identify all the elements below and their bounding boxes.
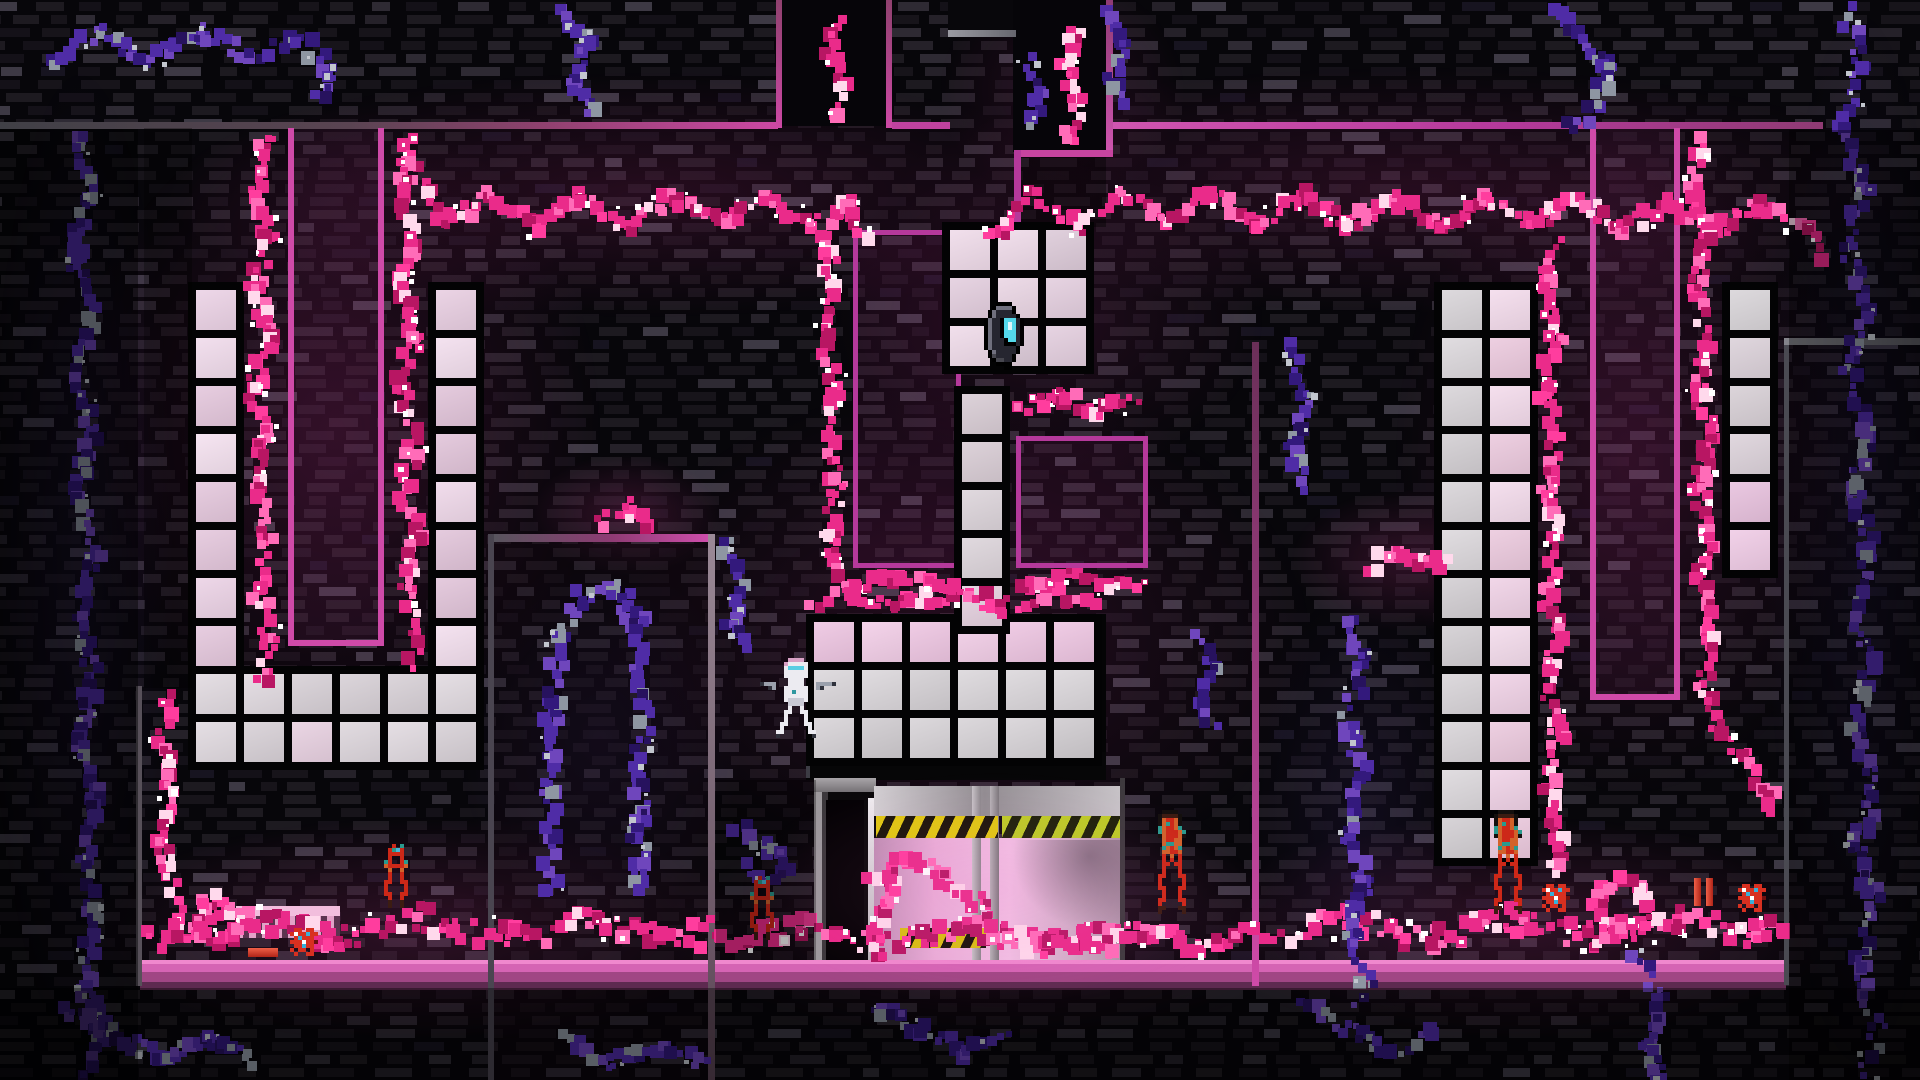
brick [20,483,38,492]
brick [1307,418,1332,427]
brick [1211,795,1227,804]
brick [48,795,73,804]
brick [1239,1068,1268,1077]
brick [1671,1055,1700,1064]
brick [1216,15,1247,24]
brick [205,1055,241,1064]
brick [418,249,452,258]
brick [814,1068,851,1077]
brick [1222,314,1256,323]
brick [1412,171,1428,180]
brick [1196,834,1225,843]
brick [1342,2,1364,11]
white-tile [1442,674,1482,714]
brick [600,288,638,297]
brick [504,93,533,102]
brick [545,145,578,154]
brick [1076,379,1115,388]
brick [1488,171,1506,180]
brick [1869,28,1901,37]
brick [465,951,489,960]
white-tile [292,722,332,762]
brick [1759,1042,1776,1051]
brick [232,1029,257,1038]
brick [91,496,123,505]
brick [745,483,763,492]
brick [42,1055,76,1064]
brick [1136,275,1161,284]
brick [744,717,761,726]
brick [1323,353,1357,362]
brick [743,41,774,50]
brick [1519,171,1550,180]
brick [56,535,81,544]
brick [0,470,5,479]
white-tile [436,530,476,570]
brick [192,106,219,115]
brick [1713,184,1742,193]
platform-edge [1014,150,1113,157]
brick [1150,1042,1173,1051]
brick [1068,1003,1096,1012]
brick [1249,236,1278,245]
brick [390,1016,417,1025]
brick [48,769,82,778]
brick [1274,782,1312,791]
brick [606,171,625,180]
brick [727,106,756,115]
brick [643,327,668,336]
white-tile [950,278,990,318]
brick [1272,626,1302,635]
brick [460,808,485,817]
brick [1795,184,1827,193]
brick [37,379,61,388]
brick [289,106,322,115]
brick [176,171,193,180]
brick [585,132,606,141]
brick [1886,106,1917,115]
brick [610,444,642,453]
platform-edge [0,122,778,129]
brick [1573,15,1601,24]
brick [1291,756,1322,765]
brick [1068,1055,1094,1064]
brick [120,561,144,570]
brick [524,80,561,89]
brick [896,93,924,102]
brick [437,1016,468,1025]
brick [1340,93,1378,102]
brick [1872,925,1907,934]
brick [935,184,972,193]
brick [1902,119,1920,128]
brick [235,990,263,999]
brick [1433,249,1471,258]
brick [1381,483,1403,492]
brick [916,171,941,180]
white-tile [862,670,902,710]
brick [1822,691,1848,700]
brick [1714,756,1731,765]
brick [1725,1016,1747,1025]
brick [1784,15,1814,24]
brick [551,418,587,427]
brick [1192,470,1231,479]
brick [0,28,30,37]
brick [1486,15,1511,24]
brick [17,561,45,570]
platform-edge [488,534,714,542]
brick [406,54,427,63]
brick [0,730,23,739]
brick [773,366,797,375]
brick [791,392,810,401]
brick [1563,795,1587,804]
brick [1654,54,1676,63]
brick [149,613,182,622]
brick [0,301,2,310]
brick [1102,236,1123,245]
brick [109,457,128,466]
brick [347,899,365,908]
brick [1572,509,1591,518]
brick [1216,275,1251,284]
brick [1260,717,1280,726]
brick [1745,678,1781,687]
brick [120,314,141,323]
white-tile [1442,482,1482,522]
brick [668,457,686,466]
brick [541,366,569,375]
brick [0,41,5,50]
brick [431,1029,467,1038]
brick [1395,600,1429,609]
brick [529,275,558,284]
brick [1270,314,1307,323]
brick [1270,132,1290,141]
brick [717,2,736,11]
brick [139,1068,157,1077]
brick [1804,1003,1828,1012]
brick [1786,522,1809,531]
brick [1321,782,1342,791]
brick [754,1042,790,1051]
white-tile [1006,670,1046,710]
brick [1874,41,1900,50]
brick [1562,769,1585,778]
brick [508,405,545,414]
brick [680,171,716,180]
block-fill [494,542,708,1080]
brick [228,769,262,778]
game-viewport[interactable] [0,0,1920,1080]
brick [1528,1042,1555,1051]
brick [1893,613,1917,622]
brick [340,1055,367,1064]
brick [330,2,353,11]
brick [0,665,7,674]
brick [704,340,724,349]
brick [743,340,779,349]
brick [1758,236,1785,245]
brick [1809,873,1846,882]
brick [1164,28,1186,37]
brick [1905,691,1920,700]
brick [429,1055,451,1064]
brick [0,899,12,908]
brick [1579,821,1604,830]
brick [0,691,2,700]
brick [1317,626,1335,635]
brick [1360,15,1387,24]
brick [1795,197,1829,206]
brick [1395,314,1415,323]
brick [561,405,594,414]
brick [711,1068,745,1077]
brick [1277,1016,1298,1025]
white-tile [1490,530,1530,570]
brick [1361,535,1388,544]
brick [766,1068,803,1077]
brick [1473,132,1505,141]
brick [613,275,630,284]
brick [161,587,180,596]
brick [0,392,21,401]
brick [741,67,778,76]
brick [1220,132,1257,141]
brick [780,314,797,323]
brick [1609,2,1649,11]
brick [1338,340,1376,349]
brick [83,54,118,63]
brick [137,210,158,219]
white-tile [1054,718,1094,758]
brick [649,431,689,440]
brick [700,314,739,323]
brick [793,496,830,505]
brick [1331,522,1369,531]
brick [0,223,2,232]
brick [792,990,819,999]
brick [1793,678,1822,687]
brick [59,93,94,102]
brick [1632,808,1660,817]
brick [1377,353,1409,362]
brick [29,535,46,544]
brick [1665,41,1700,50]
brick [222,860,261,869]
brick [667,340,693,349]
brick [371,782,409,791]
brick [1796,613,1821,622]
brick [518,444,549,453]
brick [205,93,237,102]
brick [1448,873,1470,882]
white-tile [962,538,1002,578]
brick [1169,236,1191,245]
brick [1172,574,1195,583]
brick [1163,600,1182,609]
brick [1475,106,1503,115]
brick [1498,951,1525,960]
brick [1494,54,1530,63]
brick [1208,171,1241,180]
brick [1345,249,1373,258]
brick [734,132,754,141]
brick [104,184,134,193]
brick [0,925,1,934]
brick [1142,756,1178,765]
platform-edge [708,534,715,1080]
brick [1486,249,1515,258]
brick [1642,860,1676,869]
brick [1494,1003,1531,1012]
brick [834,1042,867,1051]
brick [414,1042,443,1051]
brick [281,54,303,63]
brick [631,457,651,466]
brick [1217,574,1244,583]
brick [698,457,732,466]
brick [1811,379,1849,388]
brick [747,808,765,817]
brick [36,2,65,11]
brick [1873,717,1895,726]
brick [1602,847,1623,856]
brick [744,652,781,661]
brick [737,158,757,167]
brick [1709,28,1732,37]
brick [1410,28,1449,37]
brick [0,132,14,141]
brick [1349,587,1382,596]
brick [1166,171,1196,180]
brick [1166,106,1182,115]
brick [193,847,224,856]
brick [113,470,133,479]
brick [1101,1016,1139,1025]
red-bar [248,948,278,957]
brick [1462,2,1495,11]
brick [330,782,358,791]
brick [1804,496,1831,505]
brick [1561,587,1580,596]
brick [45,275,74,284]
brick [1796,132,1825,141]
brick [9,821,33,830]
brick [1891,847,1920,856]
brick [1244,288,1263,297]
brick [806,418,841,427]
brick [1460,145,1489,154]
brick [692,483,729,492]
brick [1890,210,1918,219]
brick [959,158,975,167]
brick [305,1055,330,1064]
brick [1726,171,1753,180]
brick [188,1016,214,1025]
brick [1804,353,1842,362]
brick [1186,366,1205,375]
brick [1425,158,1452,167]
brick [285,808,321,817]
brick [27,886,53,895]
brick [410,873,444,882]
brick [1518,1016,1540,1025]
brick [205,262,236,271]
floor-platform [1258,960,1786,990]
brick [1721,652,1753,661]
brick [683,496,719,505]
brick [1875,574,1915,583]
brick [1671,80,1700,89]
brick [1762,717,1783,726]
brick [1746,262,1784,271]
brick [347,886,368,895]
white-tile [1046,278,1086,318]
brick [1406,366,1423,375]
brick [137,145,157,154]
brick [731,756,762,765]
brick [1823,925,1858,934]
brick [432,795,451,804]
brick [1520,938,1538,947]
brick [747,990,774,999]
brick [0,1016,18,1025]
brick [265,80,293,89]
brick [1805,990,1834,999]
brick [529,431,558,440]
brick [1788,392,1807,401]
brick [1371,1003,1406,1012]
brick [698,418,733,427]
brick [124,522,145,531]
brick [184,821,202,830]
brick [1113,678,1151,687]
brick [1221,743,1239,752]
brick [375,1068,412,1077]
white-tile [1442,770,1482,810]
brick [0,184,27,193]
brick [364,834,389,843]
brick [241,847,281,856]
brick [710,80,740,89]
brick [42,28,70,37]
brick [410,860,435,869]
brick [1827,704,1847,713]
brick [1358,509,1390,518]
brick [602,15,626,24]
brick [1758,54,1794,63]
brick [1740,704,1765,713]
brick [1541,80,1574,89]
brick [294,1016,331,1025]
brick [1809,431,1828,440]
brick [1265,496,1293,505]
brick [984,1068,1008,1077]
white-tile [1442,818,1482,858]
brick [52,912,76,921]
brick [464,93,491,102]
brick [1586,704,1620,713]
brick [1662,743,1686,752]
brick [847,1003,865,1012]
white-tile [1490,722,1530,762]
brick [1885,327,1902,336]
brick [43,717,60,726]
brick [666,28,694,37]
